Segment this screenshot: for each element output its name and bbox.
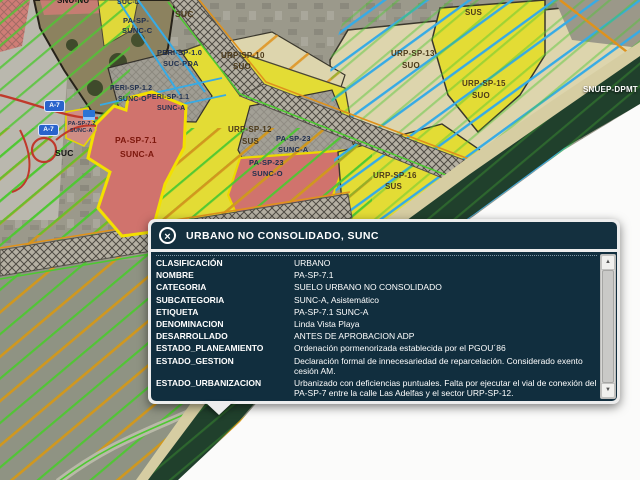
feature-info-popup: × URBANO NO CONSOLIDADO, SUNC CLASIFICAC… bbox=[148, 219, 620, 404]
highway-a7-shield: A-7 bbox=[38, 124, 59, 136]
field-value: SUELO URBANO NO CONSOLIDADO bbox=[294, 282, 597, 292]
field-value: URBANO bbox=[294, 258, 597, 268]
field-value: SUNC-A, Asistemático bbox=[294, 295, 597, 305]
zone-label: PERI-SP-1.2 bbox=[110, 85, 152, 92]
zone-label: SUNC-A bbox=[157, 105, 185, 112]
zone-label: SUC bbox=[55, 149, 74, 158]
field-label: DESARROLLADO bbox=[156, 331, 294, 341]
zone-label: SUS bbox=[385, 183, 402, 191]
zone-label: URP-SP-15 bbox=[462, 80, 506, 88]
scroll-up-icon[interactable]: ▲ bbox=[601, 255, 615, 270]
zone-label: PA-SP- bbox=[123, 17, 149, 25]
zone-label: SUC-L bbox=[117, 0, 139, 6]
field-label: CLASIFICACIÓN bbox=[156, 258, 294, 268]
field-value: Linda Vista Playa bbox=[294, 319, 597, 329]
zone-label: PERI-SP-1.1 bbox=[147, 94, 189, 101]
table-row: CLASIFICACIÓN URBANO bbox=[156, 255, 597, 269]
field-label: ESTADO_PLANEAMIENTO bbox=[156, 343, 294, 353]
table-row: SUBCATEGORIA SUNC-A, Asistemático bbox=[156, 294, 597, 306]
field-value: PA-SP-7.1 bbox=[294, 270, 597, 280]
zone-label: SNU-NU bbox=[57, 0, 89, 5]
scrollbar-thumb[interactable] bbox=[602, 270, 614, 383]
zone-label: URP-SP-12 bbox=[228, 126, 272, 134]
field-label: ETIQUETA bbox=[156, 307, 294, 317]
zone-label: URP-SP-16 bbox=[373, 172, 417, 180]
zone-label: URP-SP-1 bbox=[455, 0, 494, 2]
table-row: ETIQUETA PA-SP-7.1 SUNC-A bbox=[156, 306, 597, 318]
zone-label: PA-SP-7.2 bbox=[68, 122, 96, 128]
scroll-down-icon[interactable]: ▼ bbox=[601, 383, 615, 398]
zone-label: SUNC-A bbox=[278, 146, 308, 154]
field-label: SUBCATEGORIA bbox=[156, 295, 294, 305]
field-label: ESTADO_URBANIZACION bbox=[156, 378, 294, 388]
zone-label: SNUEP-DPMT bbox=[583, 86, 638, 94]
zone-label: SUNC-C bbox=[122, 27, 152, 35]
field-value: Ordenación pormenorizada establecida por… bbox=[294, 343, 597, 353]
table-row: DESARROLLADO ANTES DE APROBACION ADP bbox=[156, 330, 597, 342]
zone-label: PA-SP-23 bbox=[276, 135, 311, 143]
popup-scrollbar[interactable]: ▲ ▼ bbox=[600, 254, 616, 399]
zone-label: SUC bbox=[175, 10, 194, 19]
field-value: Declaración formal de innecesariedad de … bbox=[294, 356, 597, 376]
zone-label: SUNC-O bbox=[118, 96, 147, 103]
zone-label: SUS bbox=[465, 9, 482, 17]
zone-label: SUNC-O bbox=[252, 170, 283, 178]
field-value: PA-SP-7.1 SUNC-A bbox=[294, 307, 597, 317]
field-value: ANTES DE APROBACION ADP bbox=[294, 331, 597, 341]
table-row: NOMBRE PA-SP-7.1 bbox=[156, 269, 597, 281]
field-label: CATEGORIA bbox=[156, 282, 294, 292]
zone-label: PA-SP-7.1 bbox=[115, 136, 157, 145]
zone-label: SUC-PDA bbox=[163, 60, 199, 68]
popup-title: URBANO NO CONSOLIDADO, SUNC bbox=[186, 230, 379, 242]
zone-label: PA-SP-23 bbox=[249, 159, 284, 167]
table-row: CATEGORIA SUELO URBANO NO CONSOLIDADO bbox=[156, 281, 597, 293]
zone-label: SUO bbox=[402, 62, 420, 70]
field-value: ARI con ord. pormenorizada establecida P… bbox=[296, 400, 597, 401]
field-label: ESTADO_GESTION bbox=[156, 356, 294, 366]
table-row: ESTADO_PLANEAMIENTO Ordenación pormenori… bbox=[156, 342, 597, 354]
zone-label: SUNC-A bbox=[70, 129, 93, 135]
table-row: ESTADO_GESTION Declaración formal de inn… bbox=[156, 355, 597, 377]
factory-icon bbox=[83, 110, 95, 120]
highway-a7-shield: A-7 bbox=[44, 100, 65, 112]
zone-label: SUO bbox=[233, 63, 251, 71]
field-label: DENOMINACION bbox=[156, 319, 294, 329]
table-row: ESTADO_URBANIZACION Urbanizado con defic… bbox=[156, 377, 597, 399]
popup-header: × URBANO NO CONSOLIDADO, SUNC bbox=[151, 222, 617, 249]
zone-label: URP-SP-10 bbox=[221, 52, 265, 60]
zone-label: SUO bbox=[472, 92, 490, 100]
field-value: Urbanizado con deficiencias puntuales. F… bbox=[294, 378, 597, 398]
close-icon[interactable]: × bbox=[159, 227, 176, 244]
map-viewer: SNU-NU SUC-L PA-SP- SUNC-C SUC PERI-SP-1… bbox=[0, 0, 640, 480]
table-row: DENOMINACION Linda Vista Playa bbox=[156, 318, 597, 330]
popup-anchor-pointer bbox=[204, 401, 234, 415]
attribute-table: CLASIFICACIÓN URBANO NOMBRE PA-SP-7.1 CA… bbox=[151, 252, 617, 401]
zone-label: SUS bbox=[242, 138, 259, 146]
zone-label: URP-SP-13 bbox=[391, 50, 435, 58]
zone-label: PERI-SP-1.0 bbox=[157, 49, 202, 57]
zone-label: SUNC-A bbox=[120, 150, 154, 159]
field-label: NOMBRE bbox=[156, 270, 294, 280]
